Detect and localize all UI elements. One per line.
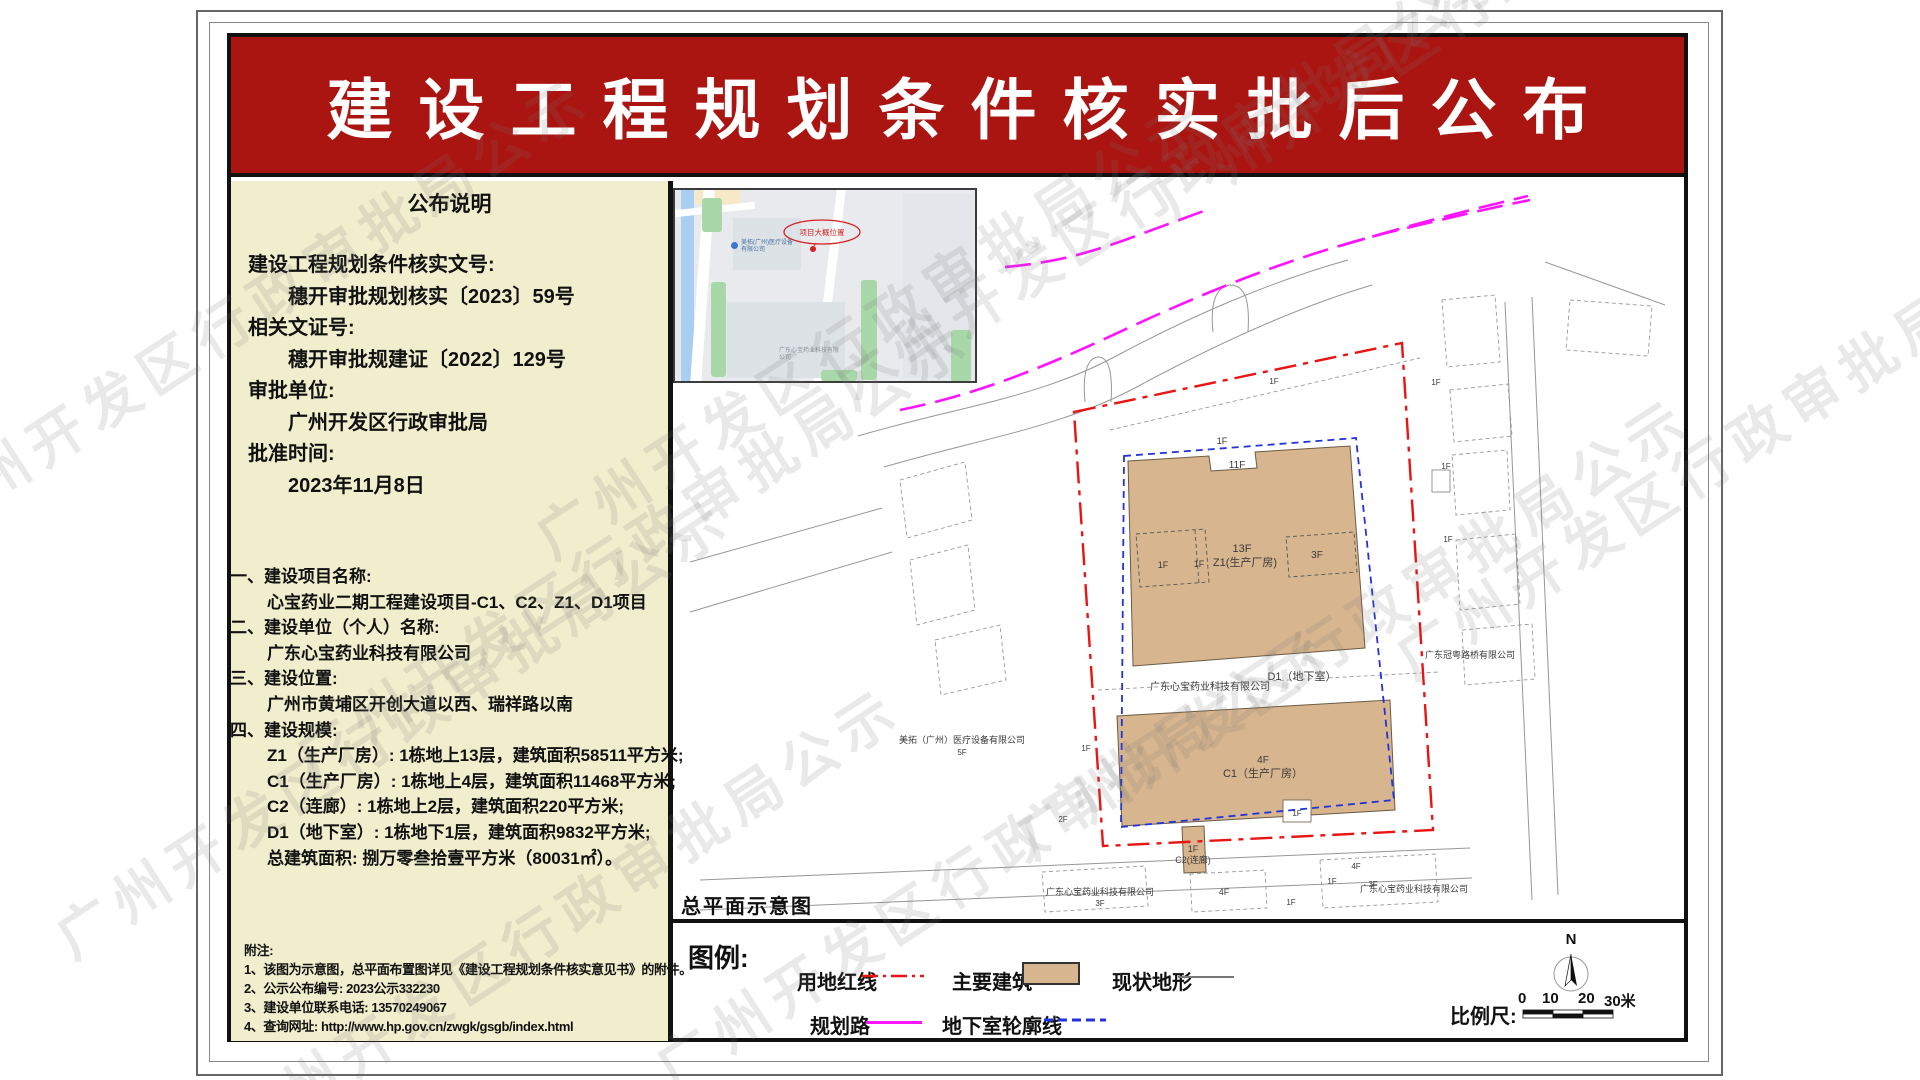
north-label: N (1566, 931, 1577, 948)
section-heading: 一、建设项目名称: (230, 564, 664, 590)
terrain-building (935, 625, 1006, 695)
scalebar-label: 比例尺: (1450, 1000, 1517, 1029)
terrain-structure (1432, 470, 1450, 492)
section-line: 心宝药业二期工程建设项目-C1、C2、Z1、D1项目 (230, 590, 664, 616)
scalebar-tick: 10 (1542, 990, 1559, 1007)
scalebar-tick: 30米 (1604, 990, 1636, 1011)
note-line: 3、建设单位联系电话: 13570249067 (244, 998, 664, 1017)
map-green-area (951, 330, 971, 382)
planned-road (1340, 196, 1528, 246)
legend-label-building: 主要建筑 (952, 966, 1032, 995)
terrain-building (1442, 295, 1500, 367)
company-label: 广东心宝药业科技有限公司 (1046, 886, 1154, 897)
floor-label: 1F (1441, 462, 1450, 471)
legend-road-sample (866, 1021, 922, 1024)
floor-label: 2F (1058, 815, 1067, 824)
scalebar-tick: 0 (1518, 990, 1526, 1007)
terrain-building (1456, 534, 1520, 610)
company-label: 广东冠粤路桥有限公司 (1425, 649, 1515, 660)
floor-label: 4F (1257, 755, 1269, 766)
legend-red-line-sample (862, 972, 924, 980)
note-line: 4、查询网址: http://www.hp.gov.cn/zwgk/gsgb/i… (244, 1017, 664, 1036)
location-map-inset: 美拓(广州)医疗设备有限公司 项目大概位置 广东心宝药业科技有限公司 (673, 188, 977, 383)
notice-fields: 建设工程规划条件核实文号: 穗开审批规划核实〔2023〕59号 相关文证号: 穗… (248, 250, 662, 502)
floor-label: 1F (1217, 436, 1228, 446)
building-label-c1: C1（生产厂房） (1223, 766, 1303, 780)
section-line: C1（生产厂房）: 1栋地上4层，建筑面积11468平方米; (230, 769, 664, 795)
field-value: 广州开发区行政审批局 (248, 408, 662, 440)
panel-title: 公布说明 (231, 188, 668, 218)
company-label: 美拓（广州）医疗设备有限公司 (899, 734, 1025, 745)
map-green-area (711, 282, 726, 377)
map-pin-icon (731, 242, 738, 249)
field-value: 2023年11月8日 (248, 471, 662, 503)
field-label: 相关文证号: (248, 313, 662, 345)
section-line: D1（地下室）: 1栋地下1层，建筑面积9832平方米; (230, 820, 664, 846)
terrain-building (1320, 854, 1438, 908)
floor-label: 1F (1194, 559, 1205, 569)
floor-label: 4F (1219, 887, 1230, 897)
building-label-z1: Z1(生产厂房) (1213, 555, 1277, 569)
map-area-label: 广东心宝药业科技有限公司 (779, 348, 839, 362)
floor-label: 1F (1158, 560, 1169, 570)
floor-label: 1F (1286, 898, 1295, 907)
floor-label: 13F (1233, 543, 1252, 555)
floor-label: 1F (1188, 844, 1199, 854)
floor-label: 1F (1269, 377, 1278, 386)
field-value: 穗开审批规划核实〔2023〕59号 (248, 282, 662, 314)
map-green-area (821, 370, 857, 381)
field-label: 审批单位: (248, 376, 662, 408)
building-label-c2: C2(连廊) (1175, 854, 1211, 865)
legend-divider (673, 919, 1684, 923)
terrain-building (1450, 384, 1512, 442)
terrain-line (690, 552, 892, 612)
legend-label-road: 规划路 (810, 1010, 870, 1039)
notice-sections: 一、建设项目名称: 心宝药业二期工程建设项目-C1、C2、Z1、D1项目 二、建… (230, 564, 664, 871)
section-line: Z1（生产厂房）: 1栋地上13层，建筑面积58511平方米; (230, 743, 664, 769)
legend-terrain-sample (1178, 976, 1234, 978)
section-line: C2（连廊）: 1栋地上2层，建筑面积220平方米; (230, 794, 664, 820)
terrain-line (1212, 285, 1248, 332)
section-line: 总建筑面积: 捌万零叁拾壹平方米（80031㎡）。 (230, 846, 664, 872)
plan-caption: 总平面示意图 (681, 890, 813, 919)
company-label: 广东心宝药业科技有限公司 (1150, 680, 1270, 693)
building-z1 (1128, 446, 1365, 666)
floor-label: 1F (1327, 877, 1336, 886)
map-green-area (861, 280, 877, 380)
building-c1 (1117, 700, 1395, 826)
legend-building-swatch (1022, 962, 1080, 985)
project-location-text: 项目大概位置 (800, 227, 845, 237)
building-label-d1: D1（地下室） (1267, 669, 1336, 683)
field-value: 穗开审批规建证〔2022〕129号 (248, 345, 662, 377)
map-green-area (702, 198, 722, 232)
legend-label-basement: 地下室轮廓线 (942, 1010, 1062, 1039)
legend-label-terrain: 现状地形 (1112, 966, 1192, 995)
map-block (727, 302, 845, 378)
terrain-line (1084, 357, 1111, 402)
floor-label: 1F (1431, 378, 1440, 387)
section-line: 广东心宝药业科技有限公司 (230, 641, 664, 667)
floor-label: 3F (1368, 880, 1377, 889)
floor-label: 5F (957, 748, 966, 757)
scalebar-tick: 20 (1578, 990, 1595, 1007)
section-heading: 四、建设规模: (230, 718, 664, 744)
planned-road (1005, 208, 1212, 267)
section-heading: 三、建设位置: (230, 666, 664, 692)
notice-banner: 建设工程规划条件核实批后公布 (231, 37, 1684, 177)
section-heading: 二、建设单位（个人）名称: (230, 615, 664, 641)
legend-basement-sample (1044, 1016, 1106, 1024)
note-line: 1、该图为示意图，总平面布置图详见《建设工程规划条件核实意见书》的附件。 (244, 960, 664, 979)
floor-label: 3F (1311, 550, 1323, 561)
terrain-building (1452, 450, 1510, 515)
field-label: 建设工程规划条件核实文号: (248, 250, 662, 282)
field-label: 批准时间: (248, 439, 662, 471)
floor-label: 11F (1229, 460, 1246, 471)
notes-title: 附注: (244, 941, 664, 960)
floor-label: 3F (1095, 899, 1104, 908)
notice-notes: 附注: 1、该图为示意图，总平面布置图详见《建设工程规划条件核实意见书》的附件。… (244, 941, 664, 1036)
legend-title: 图例: (688, 938, 749, 975)
floor-label: 4F (1351, 862, 1360, 871)
note-line: 2、公示公布编号: 2023公示332230 (244, 979, 664, 998)
terrain-line (1545, 262, 1665, 305)
floor-label: 1F (1443, 535, 1452, 544)
floor-label: 1F (1081, 744, 1090, 753)
floor-label: 1F (1292, 809, 1301, 818)
page-title: 建设工程规划条件核实批后公布 (301, 57, 1615, 153)
terrain-line (1532, 297, 1558, 895)
notice-sheet: 建设工程规划条件核实批后公布 公布说明 建设工程规划条件核实文号: 穗开审批规划… (0, 0, 1920, 1080)
terrain-building (1566, 300, 1652, 356)
project-location-annotation: 项目大概位置 (780, 218, 865, 260)
terrain-building (910, 545, 975, 625)
terrain-line (1505, 302, 1532, 900)
terrain-line (690, 508, 882, 562)
scalebar-graphic (1522, 1009, 1616, 1021)
section-line: 广州市黄埔区开创大道以西、瑞祥路以南 (230, 692, 664, 718)
terrain-building (900, 462, 972, 538)
legend-label-red-line: 用地红线 (797, 966, 877, 995)
